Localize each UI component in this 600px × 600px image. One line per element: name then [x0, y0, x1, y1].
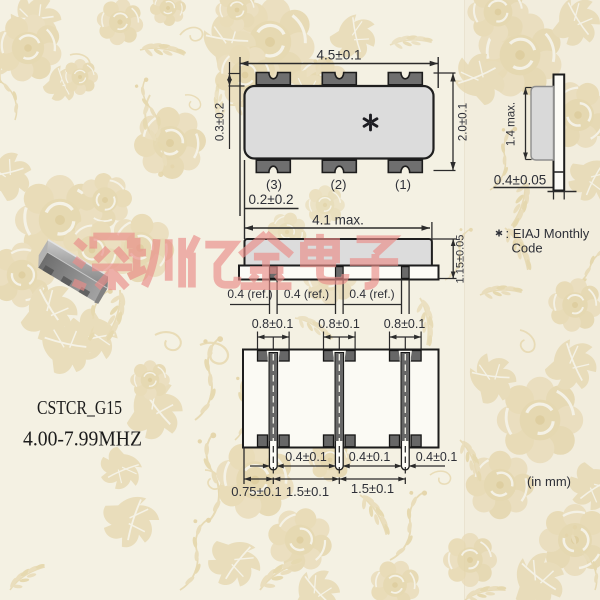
- svg-text:0.4±0.05: 0.4±0.05: [494, 173, 546, 188]
- svg-text:0.8±0.1: 0.8±0.1: [384, 317, 426, 331]
- svg-text:: EIAJ Monthly: : EIAJ Monthly: [506, 226, 590, 241]
- svg-text:1.4 max.: 1.4 max.: [506, 102, 518, 146]
- svg-text:0.75±0.1: 0.75±0.1: [231, 484, 282, 499]
- svg-text:0.2±0.2: 0.2±0.2: [249, 192, 294, 207]
- svg-text:1.15±0.05: 1.15±0.05: [455, 235, 467, 284]
- svg-text:(3): (3): [266, 177, 282, 192]
- svg-text:0.8±0.1: 0.8±0.1: [318, 317, 360, 331]
- svg-text:Code: Code: [512, 241, 543, 256]
- svg-text:0.4 (ref.): 0.4 (ref.): [349, 287, 394, 301]
- svg-text:1.5±0.1: 1.5±0.1: [286, 484, 329, 499]
- svg-text:4.1 max.: 4.1 max.: [312, 213, 364, 228]
- svg-text:CSTCR_G15: CSTCR_G15: [37, 398, 122, 419]
- svg-text:0.4±0.1: 0.4±0.1: [285, 450, 327, 464]
- svg-text:4.00-7.99MHZ: 4.00-7.99MHZ: [23, 427, 142, 451]
- svg-text:0.4±0.1: 0.4±0.1: [349, 450, 391, 464]
- svg-text:1.5±0.1: 1.5±0.1: [351, 481, 394, 496]
- svg-text:0.8±0.1: 0.8±0.1: [252, 317, 294, 331]
- svg-text:0.4±0.1: 0.4±0.1: [416, 450, 458, 464]
- svg-text:2.0±0.1: 2.0±0.1: [458, 103, 470, 141]
- svg-text:0.3±0.2: 0.3±0.2: [215, 103, 227, 141]
- svg-text:(in mm): (in mm): [527, 474, 571, 489]
- svg-text:(1): (1): [395, 177, 411, 192]
- svg-text:(2): (2): [331, 177, 347, 192]
- svg-text:4.5±0.1: 4.5±0.1: [317, 48, 362, 63]
